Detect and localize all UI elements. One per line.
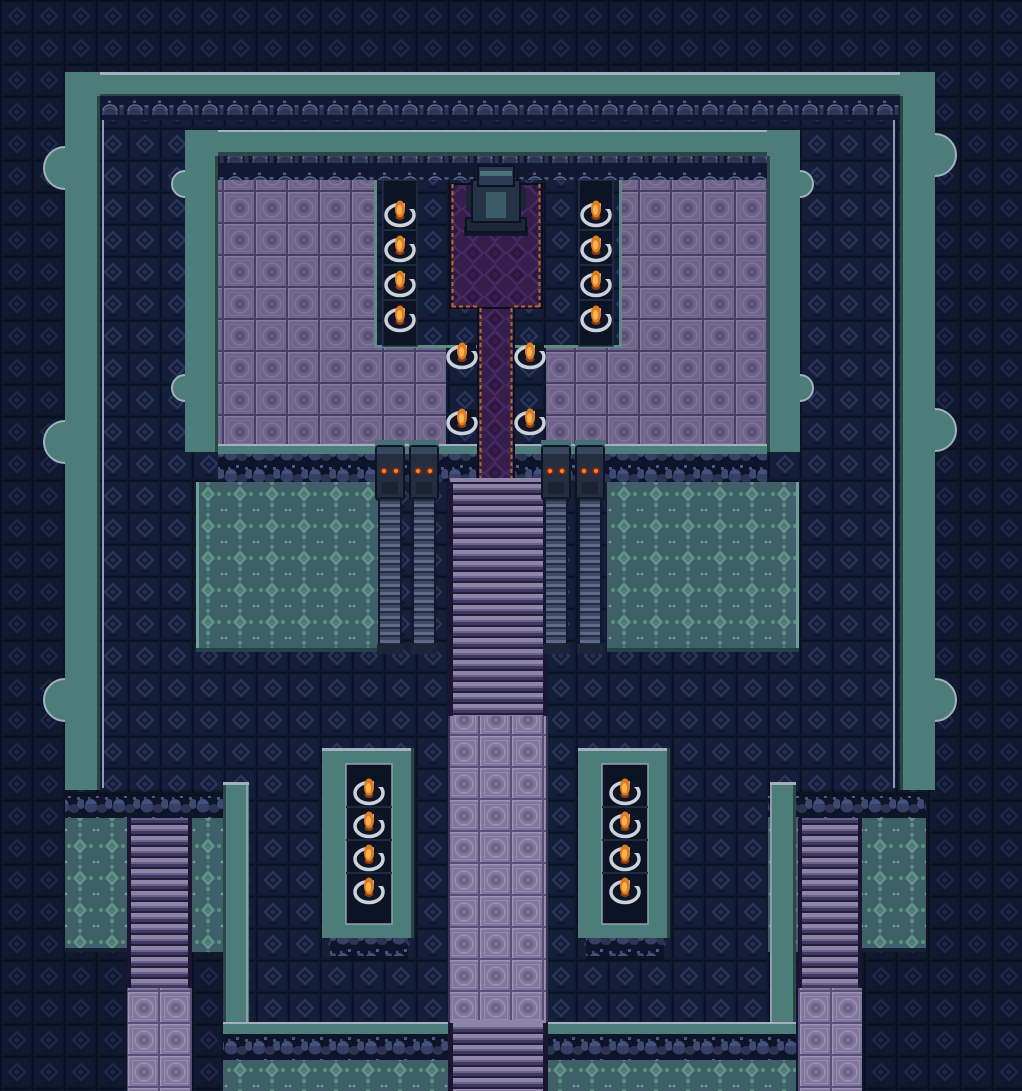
wall-face-right-edge [796, 482, 799, 652]
strip-separator [383, 264, 417, 266]
bottom-face-right [546, 1060, 796, 1091]
left-trim-cap [65, 792, 225, 796]
panel-separator [346, 806, 392, 808]
outer-wall-right-shadow [900, 96, 903, 790]
stair-top-lip [450, 478, 546, 482]
outer-wall-arch-trim [100, 96, 900, 120]
panel-separator [602, 839, 648, 841]
left-pattern-wall-base [65, 948, 127, 952]
wall-face-left [196, 482, 388, 652]
panel-separator [346, 872, 392, 874]
temple-map-canvas[interactable] [0, 0, 1022, 1091]
outer-wall-left [65, 72, 100, 790]
panel-right-base [586, 956, 664, 962]
alcove-edge-right [619, 172, 622, 348]
game-screen[interactable] [0, 0, 1022, 1091]
outer-wall-right-rail [893, 96, 895, 788]
hall-wall-top-shadow [185, 152, 800, 156]
panel-right-shadow [667, 748, 670, 938]
exit-stair-rail-right [543, 1022, 548, 1091]
right-pattern-wall-base [862, 948, 926, 952]
panel-separator [602, 806, 648, 808]
outer-wall-right [900, 72, 935, 790]
carpet-runner [478, 308, 514, 482]
left-pattern-wall-inner [192, 818, 225, 952]
statue-body-inlay [486, 192, 506, 218]
exit-stair-rail-left [448, 1022, 453, 1091]
strip-separator [383, 299, 417, 301]
panel-separator [346, 839, 392, 841]
wall-face-left-edge [196, 482, 199, 652]
panel-right-trim [586, 938, 664, 958]
outer-wall-left-shadow [97, 96, 100, 790]
right-stair-steps [802, 818, 858, 988]
lower-wall-right-shadow [793, 785, 796, 1024]
serpent-pillar-column [541, 440, 571, 654]
panel-left-highlight [322, 748, 414, 751]
bottom-rubble-right [546, 1034, 796, 1060]
panel-left-shadow [411, 748, 414, 938]
bottom-exit-staircase [448, 1020, 548, 1091]
left-pattern-wall-outer [65, 818, 127, 952]
central-walkway [448, 716, 548, 1022]
lower-wall-left-cap [223, 782, 249, 785]
hall-wall-left [185, 130, 218, 452]
exit-stair-steps [453, 1022, 543, 1091]
hall-wall-right-shadow [767, 156, 770, 452]
lower-wall-right [770, 782, 796, 1024]
panel-separator [602, 872, 648, 874]
left-rubble-trim [65, 796, 225, 818]
exit-stair-lip [450, 1020, 546, 1023]
wall-face-right [607, 482, 799, 652]
wall-face-left-base [196, 648, 388, 652]
left-stair-rail-b [188, 818, 192, 988]
statue-head-band [480, 171, 512, 176]
right-stair-rail-a [798, 818, 802, 988]
strip-separator [579, 229, 613, 231]
left-stair-rail-a [127, 818, 131, 988]
lower-wall-right-cap [770, 782, 796, 785]
strip-separator [579, 264, 613, 266]
grand-staircase [448, 478, 548, 716]
stair-steps [453, 480, 543, 716]
walkway-tiles [450, 716, 546, 1022]
bottom-cap-left-highlight [223, 1022, 450, 1024]
lower-wall-right-rail [770, 785, 772, 1024]
alcove-edge-left [374, 172, 377, 348]
left-stair-steps [131, 818, 188, 988]
outer-wall-top-highlight [65, 72, 935, 75]
strip-separator [579, 299, 613, 301]
panel-right-highlight [578, 748, 670, 751]
right-pattern-wall-outer [862, 818, 926, 952]
right-stair-rail-b [858, 818, 862, 988]
wall-face-right-base [607, 648, 799, 652]
stair-rail-left [448, 480, 453, 716]
panel-left-trim [330, 938, 408, 958]
right-exit-tiles [798, 988, 862, 1091]
serpent-pillar-column [409, 440, 439, 654]
outer-wall-left-rail [102, 96, 104, 788]
lower-wall-left-rail [246, 785, 248, 1024]
serpent-pillar-column [575, 440, 605, 654]
bottom-face-left [223, 1060, 450, 1091]
bottom-rubble-left [223, 1034, 450, 1060]
lower-wall-left [223, 782, 249, 1024]
hall-wall-right [767, 130, 800, 452]
panel-left-base [330, 956, 408, 962]
hall-wall-top-highlight [185, 130, 800, 132]
bottom-cap-right-highlight [546, 1022, 796, 1024]
lower-wall-left-shadow [223, 785, 226, 1024]
left-exit-tiles [127, 988, 192, 1091]
hall-wall-left-shadow [215, 156, 218, 452]
serpent-pillar-column [375, 440, 405, 654]
strip-separator [383, 229, 417, 231]
